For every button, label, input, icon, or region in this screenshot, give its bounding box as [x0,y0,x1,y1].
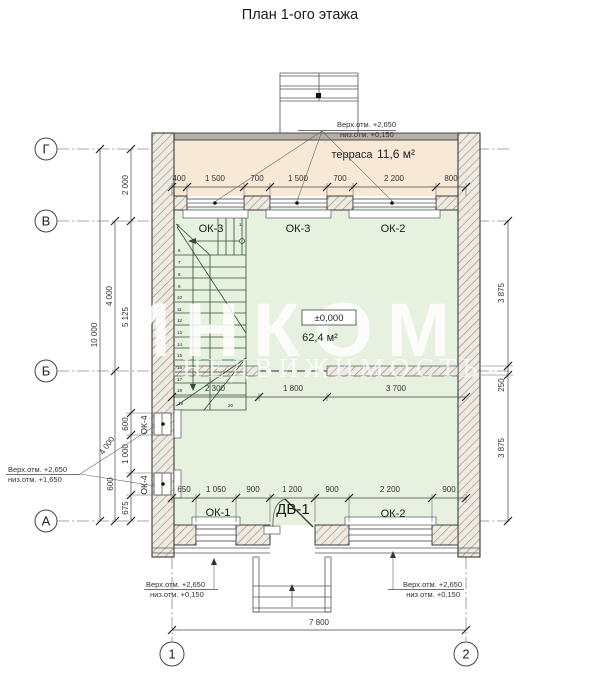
svg-text:1 000: 1 000 [121,443,130,464]
svg-text:250: 250 [497,378,506,392]
svg-text:10 000: 10 000 [90,322,99,347]
svg-text:3 700: 3 700 [386,384,407,393]
svg-text:900: 900 [246,485,260,494]
svg-text:700: 700 [333,174,347,183]
floor-plan-drawing: План 1-ого этажа [0,0,600,677]
axis-row-b: Б [42,364,51,379]
watermark: ИНКОМ НЕДВИЖИМОСТЬ [116,288,484,383]
svg-text:1 800: 1 800 [283,384,304,393]
terrace-parapet [174,133,458,140]
svg-text:18: 18 [177,388,183,393]
note-bottom-right: Верх.отм. +2,650 низ.отм. +0,150 [388,551,464,599]
label-ok3-2: ОК-3 [286,223,311,235]
axis-row-g: Г [42,142,49,157]
svg-text:600: 600 [121,417,130,431]
svg-text:3 875: 3 875 [497,282,506,303]
svg-text:4 000: 4 000 [105,285,114,306]
label-ok3-1: ОК-3 [199,223,224,235]
svg-text:5 125: 5 125 [121,306,130,327]
svg-text:1 050: 1 050 [206,485,227,494]
svg-text:низ.отм. +0,150: низ.отм. +0,150 [150,590,204,599]
svg-text:Верх.отм. +2,650: Верх.отм. +2,650 [8,465,67,474]
label-ok4-1: ОК-4 [139,415,149,434]
note-bottom-left: Верх.отм. +2,650 низ.отм. +0,150 [144,558,218,599]
svg-text:2 300: 2 300 [205,384,226,393]
svg-text:1 200: 1 200 [282,485,303,494]
svg-text:4 000: 4 000 [98,434,117,456]
svg-text:2 000: 2 000 [121,174,130,195]
label-ok2-top: ОК-2 [381,223,406,235]
axis-col-2: 2 [462,647,469,662]
svg-text:низ.отм. +0,150: низ.отм. +0,150 [340,130,394,139]
svg-text:2 200: 2 200 [384,174,405,183]
label-dv1: ДВ-1 [276,501,310,518]
svg-text:800: 800 [444,174,458,183]
svg-text:900: 900 [442,485,456,494]
svg-text:675: 675 [121,501,130,515]
svg-text:Верх.отм. +2,650: Верх.отм. +2,650 [403,580,462,589]
terrace-area-value: 11,6 м² [377,147,415,161]
svg-text:1 500: 1 500 [205,174,226,183]
svg-text:900: 900 [325,485,339,494]
svg-text:20: 20 [228,403,234,408]
page-title: План 1-ого этажа [242,7,359,23]
room-area-value: 62,4 м² [302,332,338,344]
svg-text:7 800: 7 800 [309,618,330,627]
svg-text:2 200: 2 200 [380,485,401,494]
axis-row-v: В [42,214,51,229]
svg-text:700: 700 [250,174,264,183]
watermark-sub: НЕДВИЖИМОСТЬ [182,353,483,383]
svg-text:19: 19 [178,401,184,406]
label-ok2-bottom: ОК-2 [381,508,406,520]
porch-steps [253,557,331,612]
svg-text:низ.отм. +0,150: низ.отм. +0,150 [406,590,460,599]
svg-text:Верх.отм. +2,650: Верх.отм. +2,650 [146,580,205,589]
axis-col-1: 1 [168,647,175,662]
axis-row-a: А [42,514,51,529]
svg-text:400: 400 [172,174,186,183]
svg-text:650: 650 [177,485,191,494]
svg-text:3 875: 3 875 [497,437,506,458]
svg-text:низ.отм. +1,650: низ.отм. +1,650 [8,475,62,484]
svg-text:Верх.отм. +2,650: Верх.отм. +2,650 [337,120,396,129]
label-ok1: ОК-1 [206,507,231,519]
svg-text:1 500: 1 500 [288,174,309,183]
terrace-name: терраса [331,149,373,161]
room-level: ±0,000 [315,313,344,324]
floor-plan-page: План 1-ого этажа [0,0,600,677]
